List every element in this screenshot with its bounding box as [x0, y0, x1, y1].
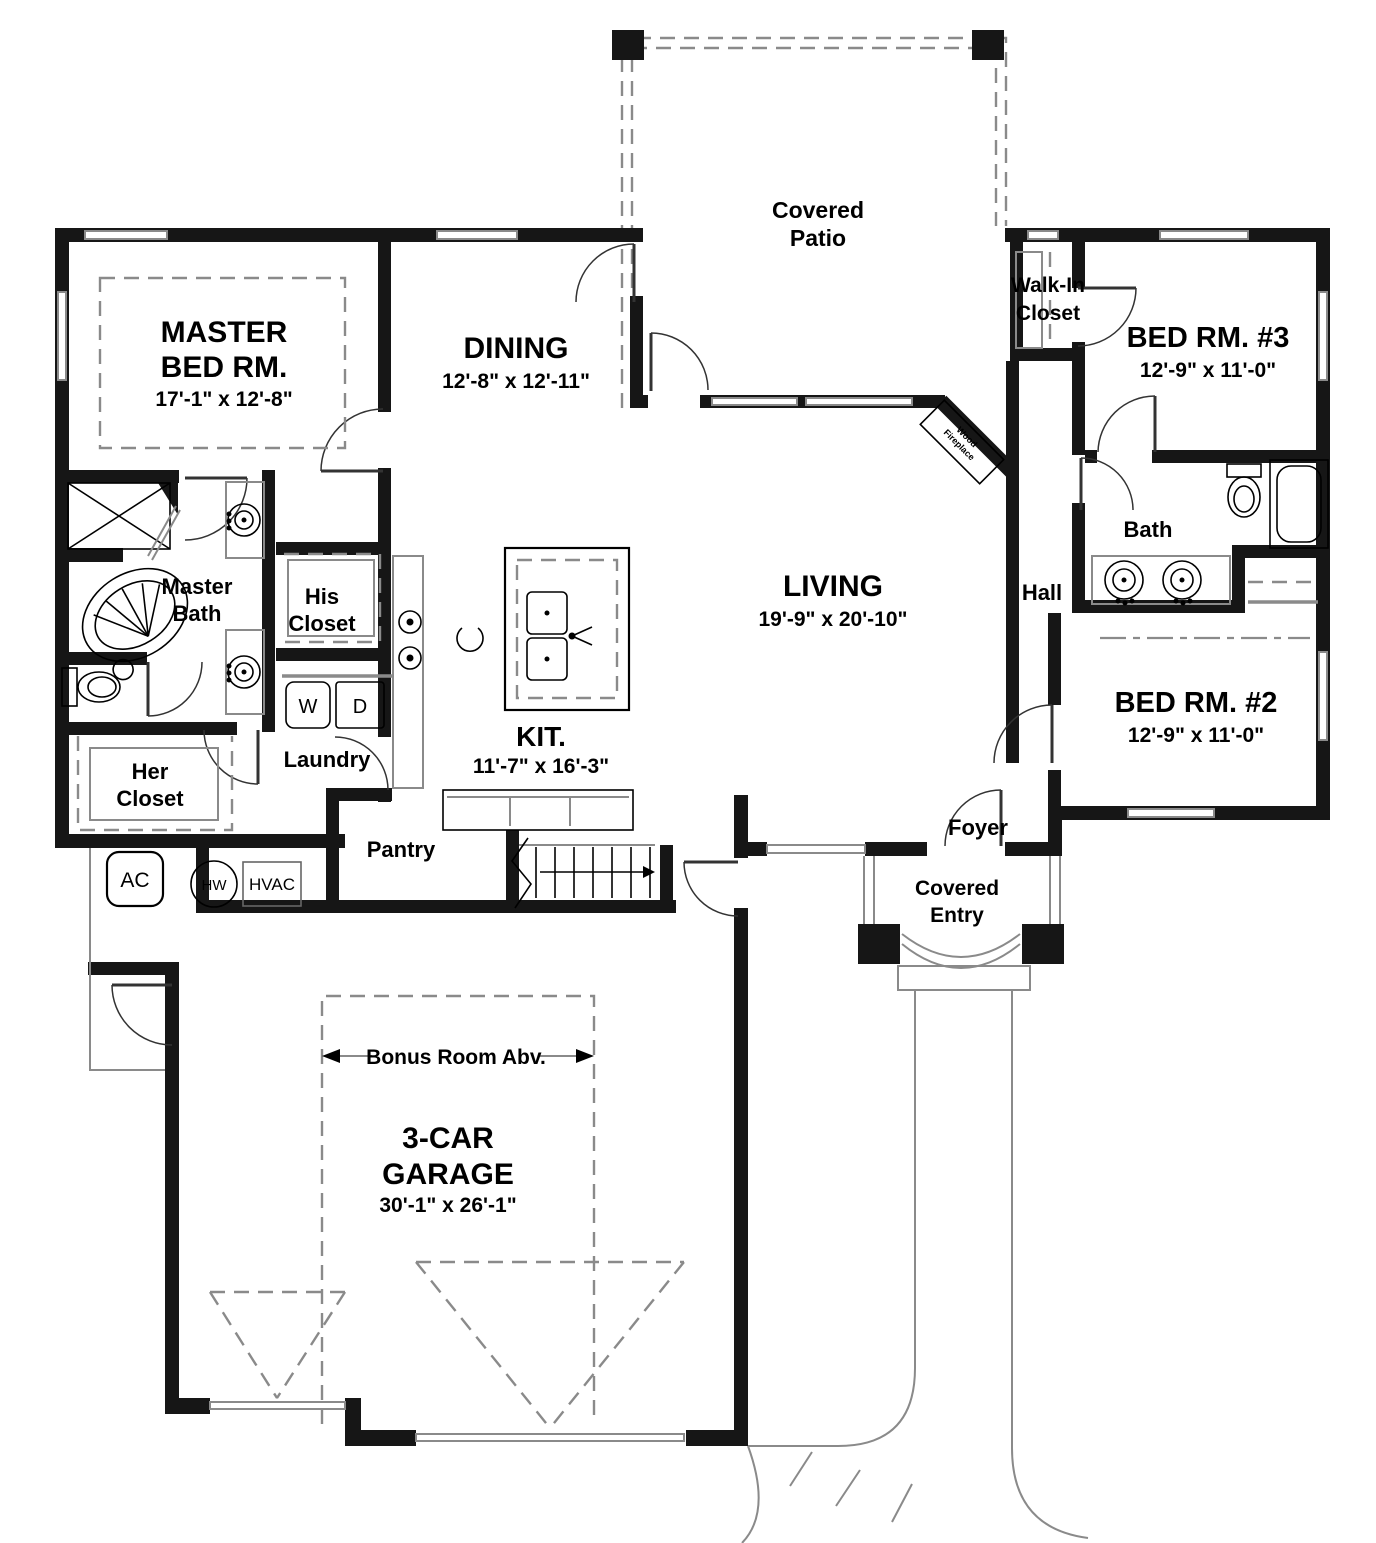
kitchen-dims: 11'-7" x 16'-3" — [473, 755, 609, 778]
bed3-dims: 12'-9" x 11'-0" — [1140, 359, 1276, 382]
patio-door-arc — [651, 333, 708, 390]
foyer-label: Foyer — [948, 815, 1008, 840]
ac-label: AC — [120, 869, 149, 892]
master-bath-label-1: Master — [162, 574, 233, 599]
room-labels: Covered Patio Walk-In Closet BED RM. #3 … — [116, 197, 1289, 1217]
door-swing-mark — [457, 628, 483, 651]
entry-step — [898, 966, 1030, 990]
walkin-closet-label-2: Closet — [1016, 302, 1080, 325]
garage-door-1 — [210, 1402, 345, 1409]
bed2-door-arc — [994, 705, 1052, 763]
her-closet-label-2: Closet — [116, 786, 184, 811]
patio-post-icon — [972, 30, 1004, 60]
bonus-arrow-right — [576, 1049, 594, 1063]
master-label-1: MASTER — [161, 316, 288, 349]
garage-side-door-arc — [112, 985, 172, 1045]
toilet-room-door-arc — [148, 662, 202, 716]
walkin-closet-label-1: Walk-In — [1011, 274, 1085, 297]
kitchen-counter — [393, 556, 423, 788]
bath-label: Bath — [1124, 517, 1173, 542]
dining-dims: 12'-8" x 12'-11" — [442, 370, 590, 393]
her-closet-label-1: Her — [132, 759, 169, 784]
garage-hall-door-arc — [684, 862, 738, 916]
laundry-label: Laundry — [284, 747, 372, 772]
pantry-label: Pantry — [367, 837, 436, 862]
driveway-left-edge — [748, 990, 915, 1446]
his-closet-label-2: Closet — [288, 611, 356, 636]
patio-post-icon — [612, 30, 644, 60]
bed3-door-arc — [1098, 396, 1155, 452]
laundry-fixtures: W D — [282, 676, 392, 728]
entry-post-icon — [858, 924, 900, 964]
washer-label: W — [299, 696, 318, 718]
floor-plan-canvas: Wood Fireplace — [0, 0, 1376, 1543]
dining-label: DINING — [464, 332, 569, 365]
entry-post-icon — [1022, 924, 1064, 964]
his-closet-label-1: His — [305, 584, 339, 609]
bed2-label: BED RM. #2 — [1115, 687, 1278, 719]
hvac-label: HVAC — [249, 875, 295, 894]
garage-door-2 — [416, 1434, 684, 1441]
master-dims: 17'-1" x 12'-8" — [155, 388, 292, 411]
bed3-label: BED RM. #3 — [1127, 322, 1290, 354]
hall-label: Hall — [1022, 580, 1062, 605]
floor-plan: Wood Fireplace — [0, 0, 1376, 1543]
covered-patio-label-2: Patio — [790, 225, 846, 251]
garage-label-2: GARAGE — [382, 1158, 514, 1191]
hw-label: HW — [202, 877, 228, 894]
entry-driveway — [742, 856, 1088, 1543]
bath-door-arc — [1081, 458, 1133, 510]
garage-dims: 30'-1" x 26'-1" — [379, 1194, 516, 1217]
master-bath-label-2: Bath — [173, 601, 222, 626]
mechanical: AC HW HVAC — [90, 848, 301, 1070]
master-label-2: BED RM. — [161, 351, 288, 384]
living-label: LIVING — [783, 570, 883, 603]
kitchen-label: KIT. — [516, 721, 566, 752]
covered-entry-label-2: Entry — [930, 904, 984, 927]
bed2-dims: 12'-9" x 11'-0" — [1128, 724, 1264, 747]
toilet-icon — [1227, 464, 1261, 477]
stairs — [512, 838, 655, 908]
bonus-arrow-left — [322, 1049, 340, 1063]
driveway-right-edge — [1012, 990, 1088, 1538]
dryer-label: D — [353, 696, 367, 718]
covered-patio-label-1: Covered — [772, 197, 864, 223]
stair-direction-arrow — [643, 866, 655, 878]
garage-label-1: 3-CAR — [402, 1122, 494, 1155]
bonus-room-label: Bonus Room Abv. — [366, 1046, 546, 1069]
living-dims: 19'-9" x 20'-10" — [759, 608, 908, 631]
kitchen-fixtures — [393, 548, 633, 830]
covered-entry-label-1: Covered — [915, 877, 999, 900]
dining-door-arc — [576, 244, 634, 302]
master-bath-door-arc — [185, 478, 247, 540]
master-door-arc — [321, 409, 383, 471]
